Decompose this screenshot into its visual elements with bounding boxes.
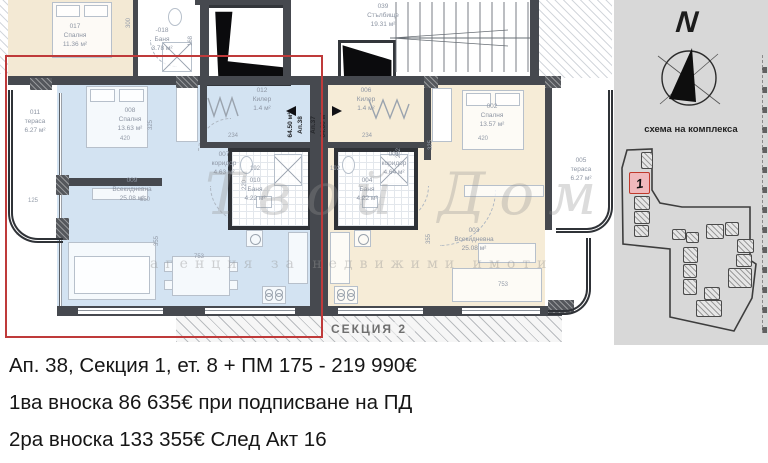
hatch-top-right xyxy=(539,0,612,78)
room-area: 19.31 м² xyxy=(371,21,396,28)
dimension: 168 xyxy=(188,36,194,46)
room-label-017: 017 Спалня 11.36 м² xyxy=(40,22,110,49)
room-label-003: 003 Всекидневна 25.08 м² xyxy=(432,226,516,253)
dimension: 262 xyxy=(396,148,402,158)
site-building xyxy=(672,229,686,240)
site-building xyxy=(683,264,697,278)
room-number: 003 xyxy=(469,227,480,234)
site-building xyxy=(634,225,649,237)
floorplan-listing-page: 017 Спалня 11.36 м² -018 Баня 3.78 м² 03… xyxy=(0,0,768,463)
room-area: 25.08 м² xyxy=(462,245,487,252)
pillow xyxy=(56,5,80,17)
room-area: 13.57 м² xyxy=(480,121,505,128)
listing-text: Ап. 38, Секция 1, ет. 8 + ПМ 175 - 219 9… xyxy=(9,347,417,458)
wall xyxy=(195,0,290,5)
site-building xyxy=(704,287,720,300)
pillow xyxy=(84,5,108,17)
site-building xyxy=(725,222,739,236)
room-name: Баня xyxy=(155,36,170,43)
toilet xyxy=(168,8,182,26)
wall xyxy=(326,142,430,148)
room-name: Всекидневна xyxy=(454,236,493,243)
room-label-018: -018 Баня 3.78 м² xyxy=(140,26,184,53)
burner xyxy=(337,293,345,301)
dimension: 234 xyxy=(362,133,372,139)
dimension: 355 xyxy=(426,234,432,244)
building-number: 1 xyxy=(635,175,644,191)
page-edge-marks xyxy=(762,55,767,333)
dimension: 753 xyxy=(498,282,508,288)
compass-icon xyxy=(650,38,728,118)
washing-machine-door xyxy=(358,234,369,245)
site-building xyxy=(641,152,653,169)
panel-title: схема на комплекса xyxy=(616,124,766,135)
burner xyxy=(347,293,355,301)
compass-north-label: N xyxy=(674,6,699,40)
room-name: Килер xyxy=(357,96,375,103)
room-number: 017 xyxy=(70,23,81,30)
sofa xyxy=(452,268,542,302)
pillar xyxy=(424,76,438,88)
dimension: 300 xyxy=(126,18,132,28)
room-name: Спалня xyxy=(481,112,504,119)
site-building xyxy=(683,279,697,295)
window xyxy=(338,308,423,314)
balcony-rail-lower-right xyxy=(548,238,591,315)
room-area: 11.36 м² xyxy=(63,41,87,48)
site-building xyxy=(706,224,724,239)
wardrobe xyxy=(432,88,452,142)
room-area: 1.4 м² xyxy=(357,105,374,112)
site-building-highlighted: 1 xyxy=(629,172,650,194)
site-building xyxy=(634,196,650,210)
site-building xyxy=(634,211,650,224)
window xyxy=(462,308,540,314)
dimension: 420 xyxy=(478,136,488,142)
listing-line-first-installment: 1ва вноска 86 635€ при подписване на ПД xyxy=(9,384,417,421)
room-number: 002 xyxy=(487,103,498,110)
room-number: 039 xyxy=(378,3,389,10)
site-building xyxy=(696,300,722,317)
room-label-039: 039 Стълбище 19.31 м² xyxy=(352,2,414,29)
site-building xyxy=(736,254,752,267)
site-building xyxy=(683,247,698,263)
room-name: Спалня xyxy=(64,32,87,39)
room-name: Стълбище xyxy=(367,12,399,19)
site-building xyxy=(686,232,699,243)
room-number: 006 xyxy=(361,87,372,94)
room-label-002: 002 Спалня 13.57 м² xyxy=(460,102,524,129)
apartment-38-highlight-rect xyxy=(5,55,323,338)
listing-line-second-installment: 2ра вноска 133 355€ След Акт 16 xyxy=(9,421,417,458)
site-building xyxy=(728,268,752,288)
dimension: 325 xyxy=(428,140,434,150)
room-number: -018 xyxy=(155,27,168,34)
stove xyxy=(334,286,358,304)
wall xyxy=(530,0,539,80)
section-label: СЕКЦИЯ 2 xyxy=(323,322,415,336)
room-label-006: 006 Килер 1.4 м² xyxy=(336,86,396,113)
pillar xyxy=(545,76,561,88)
listing-line-price: Ап. 38, Секция 1, ет. 8 + ПМ 175 - 219 9… xyxy=(9,347,417,384)
site-building xyxy=(737,239,754,253)
room-area: 3.78 м² xyxy=(151,45,172,52)
washing-machine xyxy=(354,230,371,247)
